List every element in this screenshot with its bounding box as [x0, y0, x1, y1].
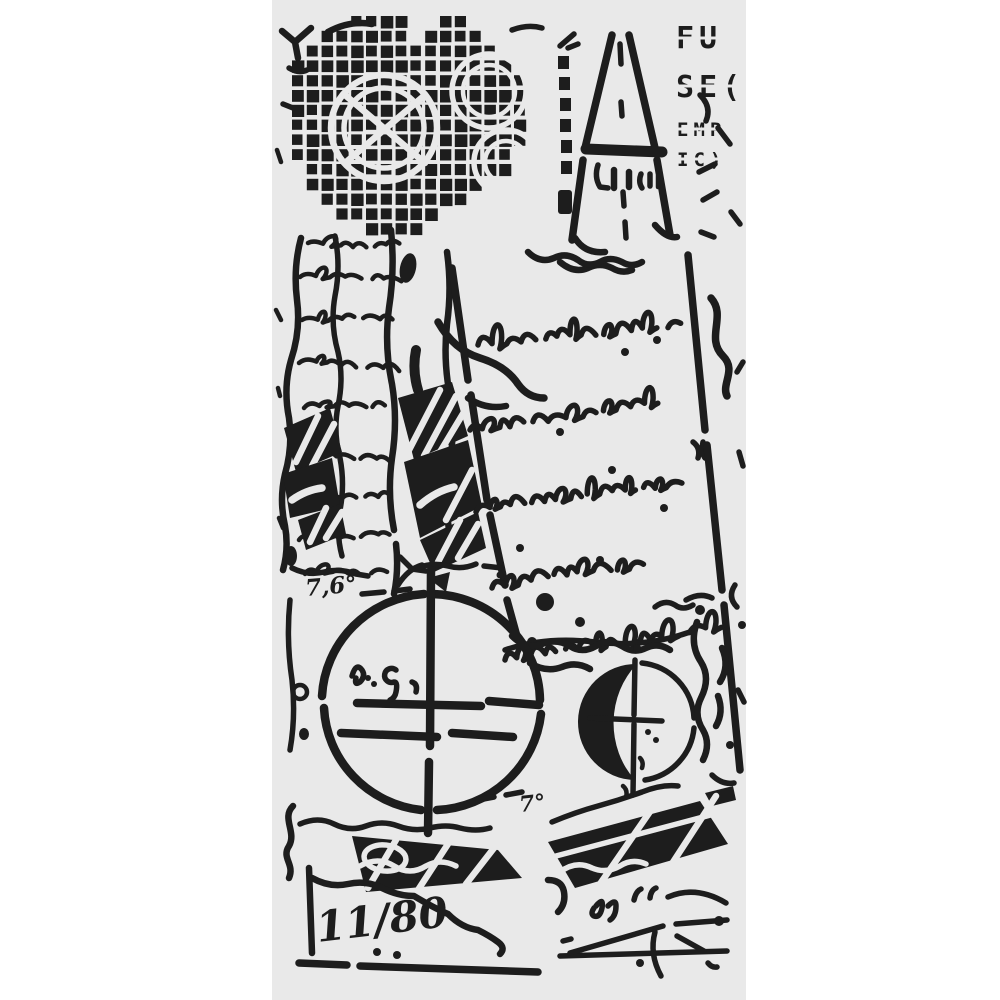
eclipse-vertical [633, 660, 635, 795]
fraction-left-rule [309, 868, 312, 953]
angle-upper-label: 7,6° [304, 571, 358, 602]
angle-lower-label: 7° [518, 789, 547, 818]
tower-band [586, 149, 662, 152]
stencil-artwork: FU SE( EMP IC) [0, 0, 1000, 1000]
eclipse-horizontal [590, 718, 662, 721]
stencil-product-image: FU SE( EMP IC) [0, 0, 1000, 1000]
